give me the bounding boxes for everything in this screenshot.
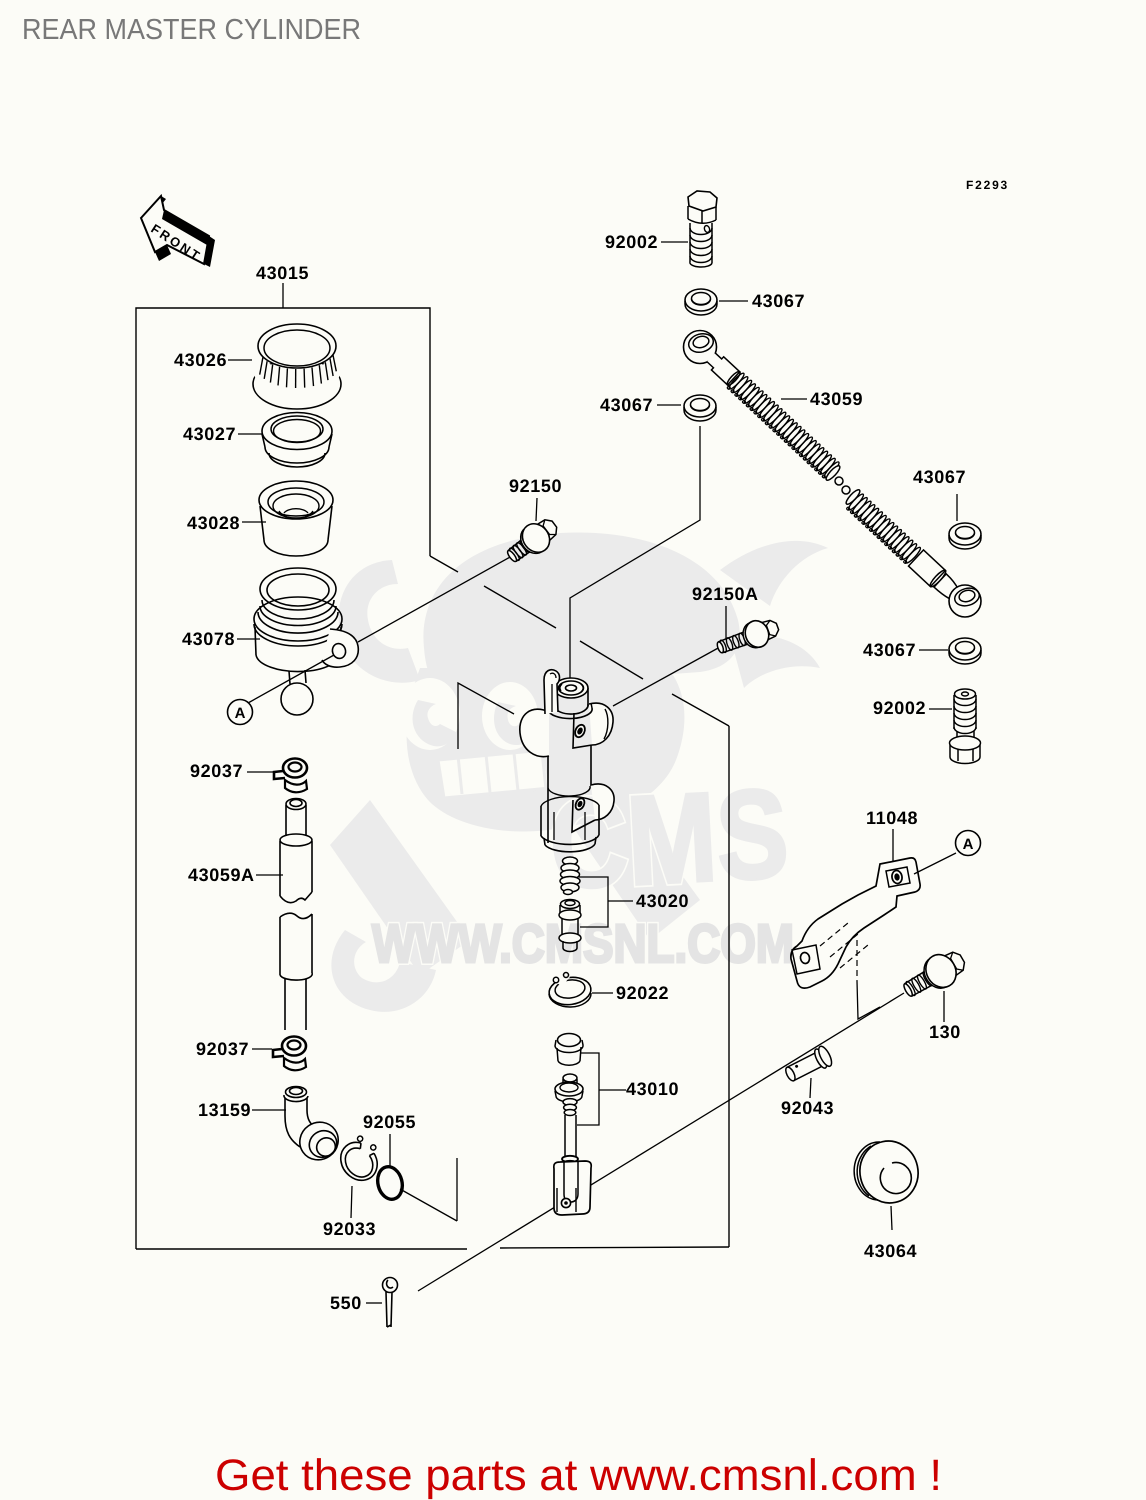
svg-text:43067: 43067 bbox=[600, 395, 653, 415]
svg-text:43067: 43067 bbox=[863, 640, 916, 660]
svg-text:A: A bbox=[963, 836, 974, 853]
svg-text:13159: 13159 bbox=[198, 1100, 251, 1120]
svg-text:92002: 92002 bbox=[873, 698, 926, 718]
svg-text:43026: 43026 bbox=[174, 350, 227, 370]
svg-text:43067: 43067 bbox=[752, 291, 805, 311]
svg-text:43059: 43059 bbox=[810, 389, 863, 409]
svg-text:92022: 92022 bbox=[616, 983, 669, 1003]
svg-text:43010: 43010 bbox=[626, 1079, 679, 1099]
svg-text:92037: 92037 bbox=[196, 1039, 249, 1059]
svg-text:11048: 11048 bbox=[866, 808, 918, 828]
svg-text:92150A: 92150A bbox=[692, 584, 759, 604]
svg-text:REAR MASTER CYLINDER: REAR MASTER CYLINDER bbox=[22, 14, 361, 46]
svg-text:F2293: F2293 bbox=[966, 178, 1009, 192]
svg-text:43027: 43027 bbox=[183, 424, 236, 444]
svg-text:43028: 43028 bbox=[187, 513, 240, 533]
svg-text:43078: 43078 bbox=[182, 629, 235, 649]
svg-text:550: 550 bbox=[330, 1293, 362, 1313]
svg-text:43015: 43015 bbox=[256, 263, 309, 283]
svg-text:92033: 92033 bbox=[323, 1219, 376, 1239]
svg-text:130: 130 bbox=[929, 1022, 961, 1042]
svg-text:43067: 43067 bbox=[913, 467, 966, 487]
svg-text:92037: 92037 bbox=[190, 761, 243, 781]
svg-text:43020: 43020 bbox=[636, 891, 689, 911]
svg-text:Get these parts at www.cmsnl.c: Get these parts at www.cmsnl.com ! bbox=[215, 1451, 942, 1500]
svg-text:92043: 92043 bbox=[781, 1098, 834, 1118]
svg-text:43059A: 43059A bbox=[188, 865, 255, 885]
svg-text:92150: 92150 bbox=[509, 476, 562, 496]
svg-text:A: A bbox=[235, 705, 246, 722]
svg-text:43064: 43064 bbox=[864, 1241, 917, 1261]
svg-text:92002: 92002 bbox=[605, 232, 658, 252]
svg-text:WWW.CMSNL.COM: WWW.CMSNL.COM bbox=[372, 914, 794, 974]
svg-text:92055: 92055 bbox=[363, 1112, 416, 1132]
